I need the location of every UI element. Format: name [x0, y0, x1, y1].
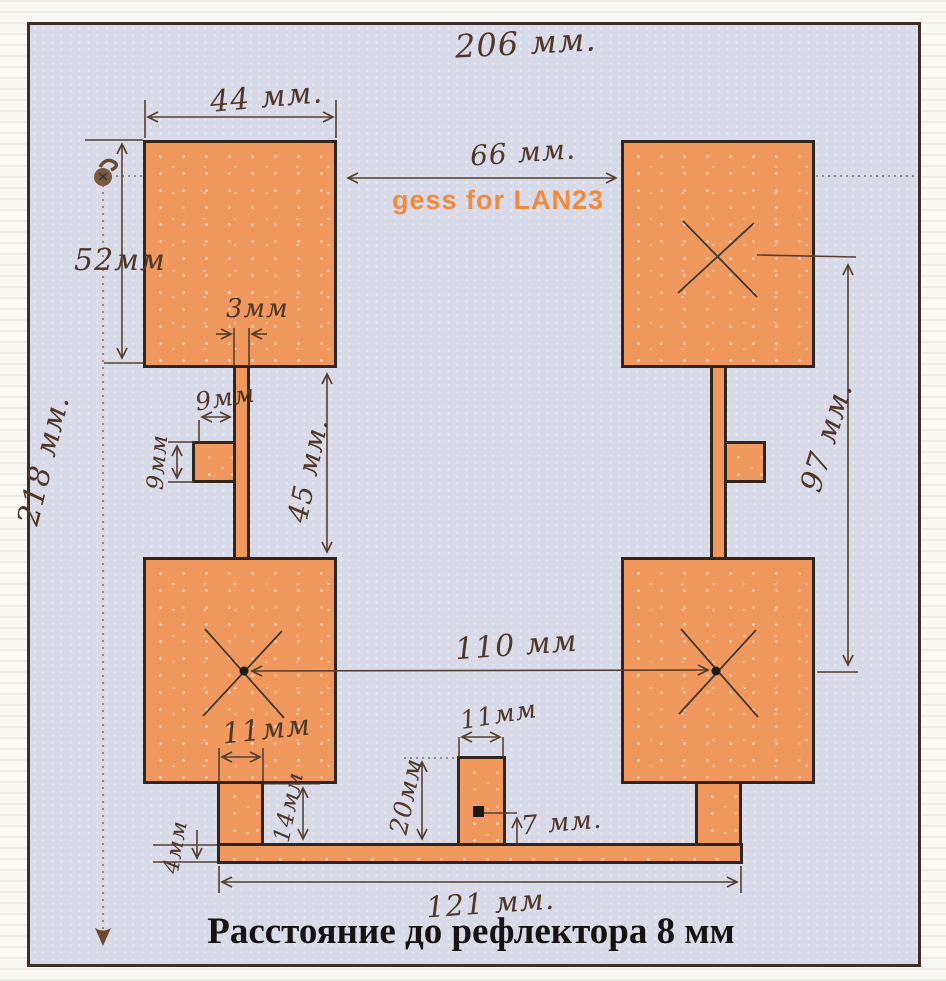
watermark-text: gess for LAN23: [392, 185, 604, 216]
dim-label-stub-size: 9мм: [143, 433, 174, 491]
feed-strip-right: [710, 360, 727, 562]
patch-bottom-right: [621, 557, 815, 784]
patch-top-left: [143, 140, 337, 368]
caption-reflector-distance: Расстояние до рефлектора 8 мм: [27, 910, 915, 953]
leg-right: [695, 780, 742, 848]
leg-left: [217, 780, 264, 848]
patch-top-right: [621, 140, 815, 368]
dim-label-total-width: 206 мм.: [454, 20, 597, 65]
patch-bottom-left: [143, 557, 337, 784]
feed-stub-center: [457, 756, 506, 847]
dim-label-patch-height: 52мм: [74, 243, 166, 278]
matching-stub-right: [721, 441, 766, 483]
bottom-bar: [217, 843, 743, 864]
matching-stub-left: [192, 441, 237, 483]
antenna-drawing-scan: 206 мм. 44 мм. 66 мм. gess for LAN23 52м…: [0, 0, 946, 981]
dim-label-strip-width: 3мм: [226, 294, 289, 324]
